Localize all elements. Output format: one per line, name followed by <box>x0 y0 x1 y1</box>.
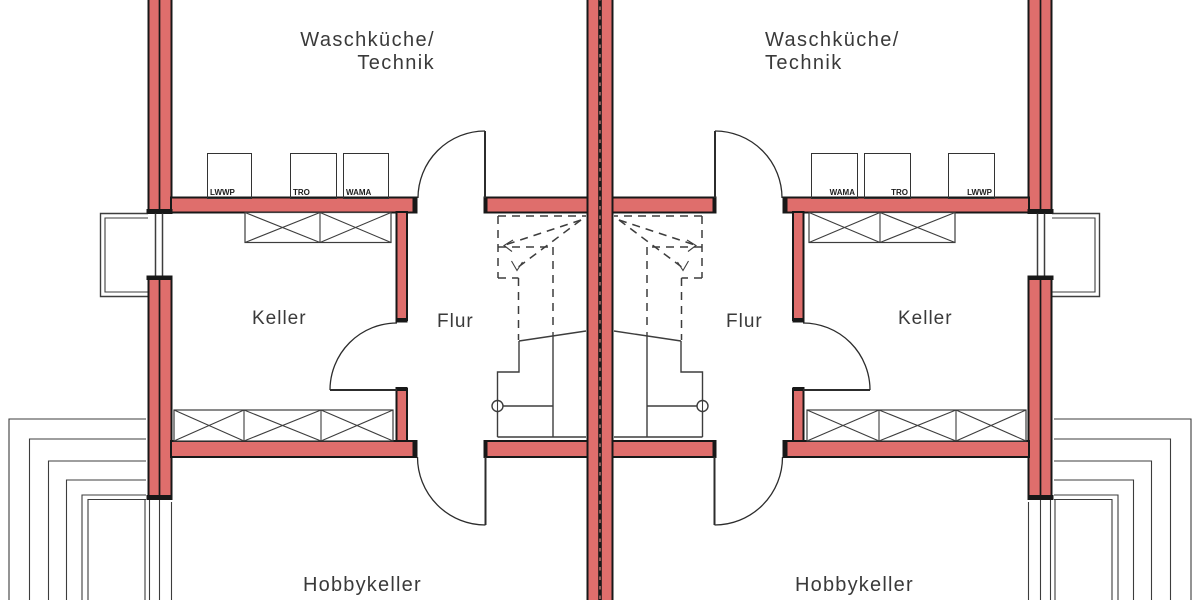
party-wall <box>588 0 613 600</box>
unit-left-drawing <box>9 0 588 600</box>
appliance-box-wama-right: WAMA <box>811 153 858 199</box>
room-label-keller-right: Keller <box>898 308 953 330</box>
laundry-right-line1: Waschküche/ <box>765 29 900 52</box>
room-label-hobbykeller-right: Hobbykeller <box>795 574 914 597</box>
stair-lower-solid <box>492 331 586 437</box>
appliance-box-lwwp-right: LWWP <box>948 153 995 199</box>
stair-upper-dashed <box>498 216 586 340</box>
appliance-label: LWWP <box>967 188 992 197</box>
appliance-label: WAMA <box>346 188 371 197</box>
room-label-hobbykeller-left: Hobbykeller <box>303 574 422 597</box>
door-keller <box>330 323 397 390</box>
laundry-left-line2: Technik <box>300 52 435 75</box>
door-hobbykeller <box>418 457 486 525</box>
appliance-label: WAMA <box>830 188 855 197</box>
appliance-box-tro-left: TRO <box>290 153 337 199</box>
appliance-label: LWWP <box>210 188 235 197</box>
appliance-box-wama-left: WAMA <box>343 153 389 199</box>
basement-window <box>156 213 163 276</box>
room-label-keller-left: Keller <box>252 308 307 330</box>
floor-plan-drawing <box>0 0 1200 600</box>
floor-plan: Waschküche/ Technik Waschküche/ Technik … <box>0 0 1200 600</box>
shelf-band-bottom <box>174 410 393 441</box>
door-laundry <box>418 131 485 198</box>
laundry-right-line2: Technik <box>765 52 900 75</box>
appliance-box-tro-right: TRO <box>864 153 911 199</box>
appliance-label: TRO <box>293 188 310 197</box>
appliance-box-lwwp-left: LWWP <box>207 153 252 199</box>
stair-arrow-left <box>504 240 513 252</box>
room-label-laundry-left: Waschküche/ Technik <box>300 29 435 75</box>
room-label-flur-right: Flur <box>726 311 763 333</box>
exterior-wall <box>149 0 172 498</box>
room-label-laundry-right: Waschküche/ Technik <box>765 29 900 75</box>
shelf-band-top <box>245 213 391 243</box>
room-label-flur-left: Flur <box>437 311 474 333</box>
laundry-left-line1: Waschküche/ <box>300 29 435 52</box>
appliance-label: TRO <box>891 188 908 197</box>
light-well <box>101 214 149 297</box>
exterior-stair-lines <box>9 419 172 600</box>
unit-right-drawing <box>613 0 1192 600</box>
